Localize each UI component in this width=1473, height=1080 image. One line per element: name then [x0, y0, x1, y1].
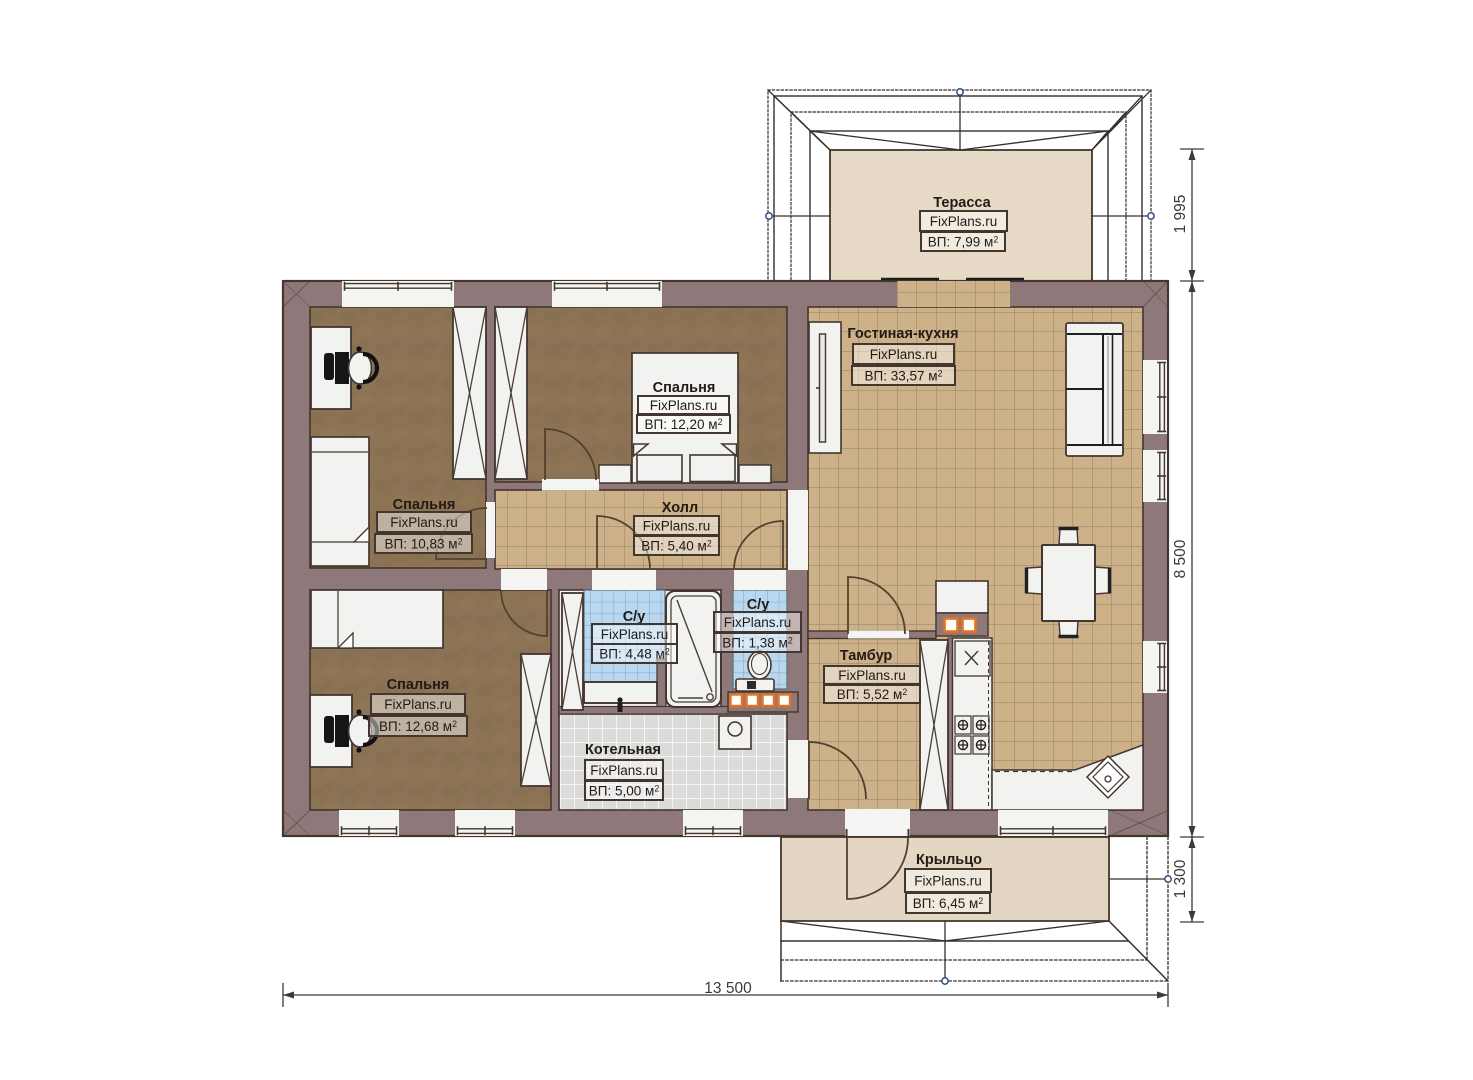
svg-text:FixPlans.ru: FixPlans.ru [650, 398, 718, 413]
svg-text:ВП: 33,57 м2: ВП: 33,57 м2 [865, 369, 943, 384]
svg-text:1 300: 1 300 [1172, 859, 1189, 898]
svg-text:Гостиная-кухня: Гостиная-кухня [847, 326, 958, 342]
svg-text:ВП: 12,68 м2: ВП: 12,68 м2 [379, 719, 457, 734]
svg-text:FixPlans.ru: FixPlans.ru [930, 214, 998, 229]
svg-text:С/у: С/у [623, 609, 646, 625]
svg-text:FixPlans.ru: FixPlans.ru [643, 519, 711, 534]
svg-text:FixPlans.ru: FixPlans.ru [384, 697, 452, 712]
svg-text:ВП: 1,38 м2: ВП: 1,38 м2 [722, 636, 793, 651]
svg-text:ВП: 12,20 м2: ВП: 12,20 м2 [645, 417, 723, 432]
svg-text:Котельная: Котельная [585, 742, 661, 758]
svg-text:Терасса: Терасса [933, 195, 991, 211]
svg-text:ВП: 5,52 м2: ВП: 5,52 м2 [837, 687, 908, 702]
svg-text:8 500: 8 500 [1172, 539, 1189, 578]
svg-text:FixPlans.ru: FixPlans.ru [870, 347, 938, 362]
svg-text:ВП: 10,83 м2: ВП: 10,83 м2 [385, 537, 463, 552]
svg-text:Тамбур: Тамбур [840, 648, 893, 664]
svg-text:13 500: 13 500 [704, 980, 752, 997]
svg-text:ВП: 4,48 м2: ВП: 4,48 м2 [599, 647, 670, 662]
svg-text:ВП: 5,00 м2: ВП: 5,00 м2 [589, 784, 660, 799]
svg-text:ВП: 6,45 м2: ВП: 6,45 м2 [913, 896, 984, 911]
svg-text:Спальня: Спальня [387, 677, 450, 693]
svg-text:FixPlans.ru: FixPlans.ru [601, 627, 669, 642]
svg-text:ВП: 7,99 м2: ВП: 7,99 м2 [928, 235, 999, 250]
svg-text:FixPlans.ru: FixPlans.ru [390, 515, 458, 530]
svg-text:FixPlans.ru: FixPlans.ru [590, 763, 658, 778]
svg-text:FixPlans.ru: FixPlans.ru [838, 668, 906, 683]
svg-text:1 995: 1 995 [1172, 195, 1189, 234]
svg-text:FixPlans.ru: FixPlans.ru [724, 615, 792, 630]
svg-text:ВП: 5,40 м2: ВП: 5,40 м2 [641, 539, 712, 554]
svg-text:С/у: С/у [747, 597, 770, 613]
svg-text:FixPlans.ru: FixPlans.ru [914, 874, 982, 889]
svg-text:Спальня: Спальня [393, 497, 456, 513]
svg-text:Крыльцо: Крыльцо [916, 852, 982, 868]
svg-text:Спальня: Спальня [653, 380, 716, 396]
svg-text:Холл: Холл [662, 500, 698, 516]
